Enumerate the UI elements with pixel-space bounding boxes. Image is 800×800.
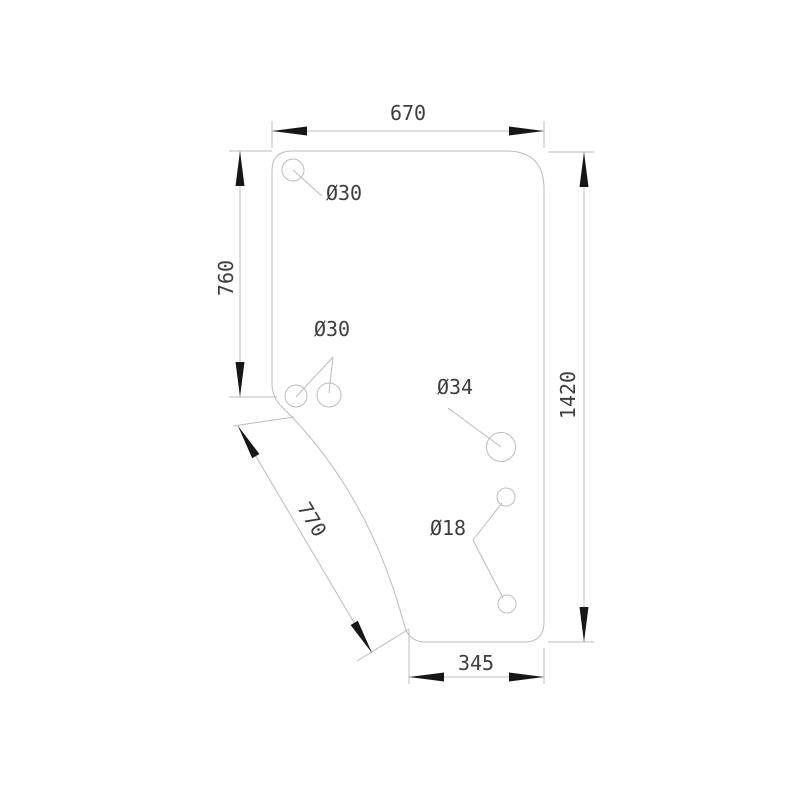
hole-mid-left-2 (317, 383, 341, 407)
dim-1420-arrow-top (580, 152, 589, 187)
hole-small-lower (498, 595, 516, 613)
dim-670-arrow-right (509, 127, 544, 136)
dim-670-arrow-left (272, 127, 307, 136)
ext-770-lower (357, 629, 409, 661)
ext-770-upper (233, 417, 294, 426)
dim-770-arrow-bottom (351, 621, 372, 653)
hole-mid-left-label: Ø30 (314, 317, 350, 341)
leader-top-left-hole (293, 170, 322, 196)
dim-760-label: 760 (214, 260, 238, 296)
panel-outline (272, 151, 544, 642)
dim-770-line (238, 426, 372, 653)
dim-1420-arrow-bottom (580, 607, 589, 642)
leader-mid-left-hole-2 (329, 357, 333, 393)
leader-small-hole-lower (473, 540, 503, 598)
drawing-canvas: 670 760 1420 345 770 Ø30 Ø30 Ø34 Ø18 (0, 0, 800, 800)
dim-1420-label: 1420 (556, 371, 580, 419)
dim-345-label: 345 (458, 651, 494, 675)
hole-small-upper (497, 488, 515, 506)
dim-345-arrow-left (409, 673, 444, 682)
dim-670-label: 670 (390, 101, 426, 125)
dim-770-arrow-top (238, 426, 259, 458)
dim-770-label: 770 (292, 498, 331, 541)
dim-345-arrow-right (509, 673, 544, 682)
hole-small-label: Ø18 (430, 516, 466, 540)
technical-drawing: 670 760 1420 345 770 Ø30 Ø30 Ø34 Ø18 (0, 0, 800, 800)
hole-center-label: Ø34 (437, 375, 473, 399)
hole-top-left-label: Ø30 (326, 181, 362, 205)
dim-760-arrow-top (236, 151, 245, 186)
leader-mid-left-hole-1 (296, 357, 333, 397)
leader-center-hole (448, 408, 501, 447)
dim-760-arrow-bottom (236, 362, 245, 397)
leader-small-hole-upper (473, 503, 502, 540)
